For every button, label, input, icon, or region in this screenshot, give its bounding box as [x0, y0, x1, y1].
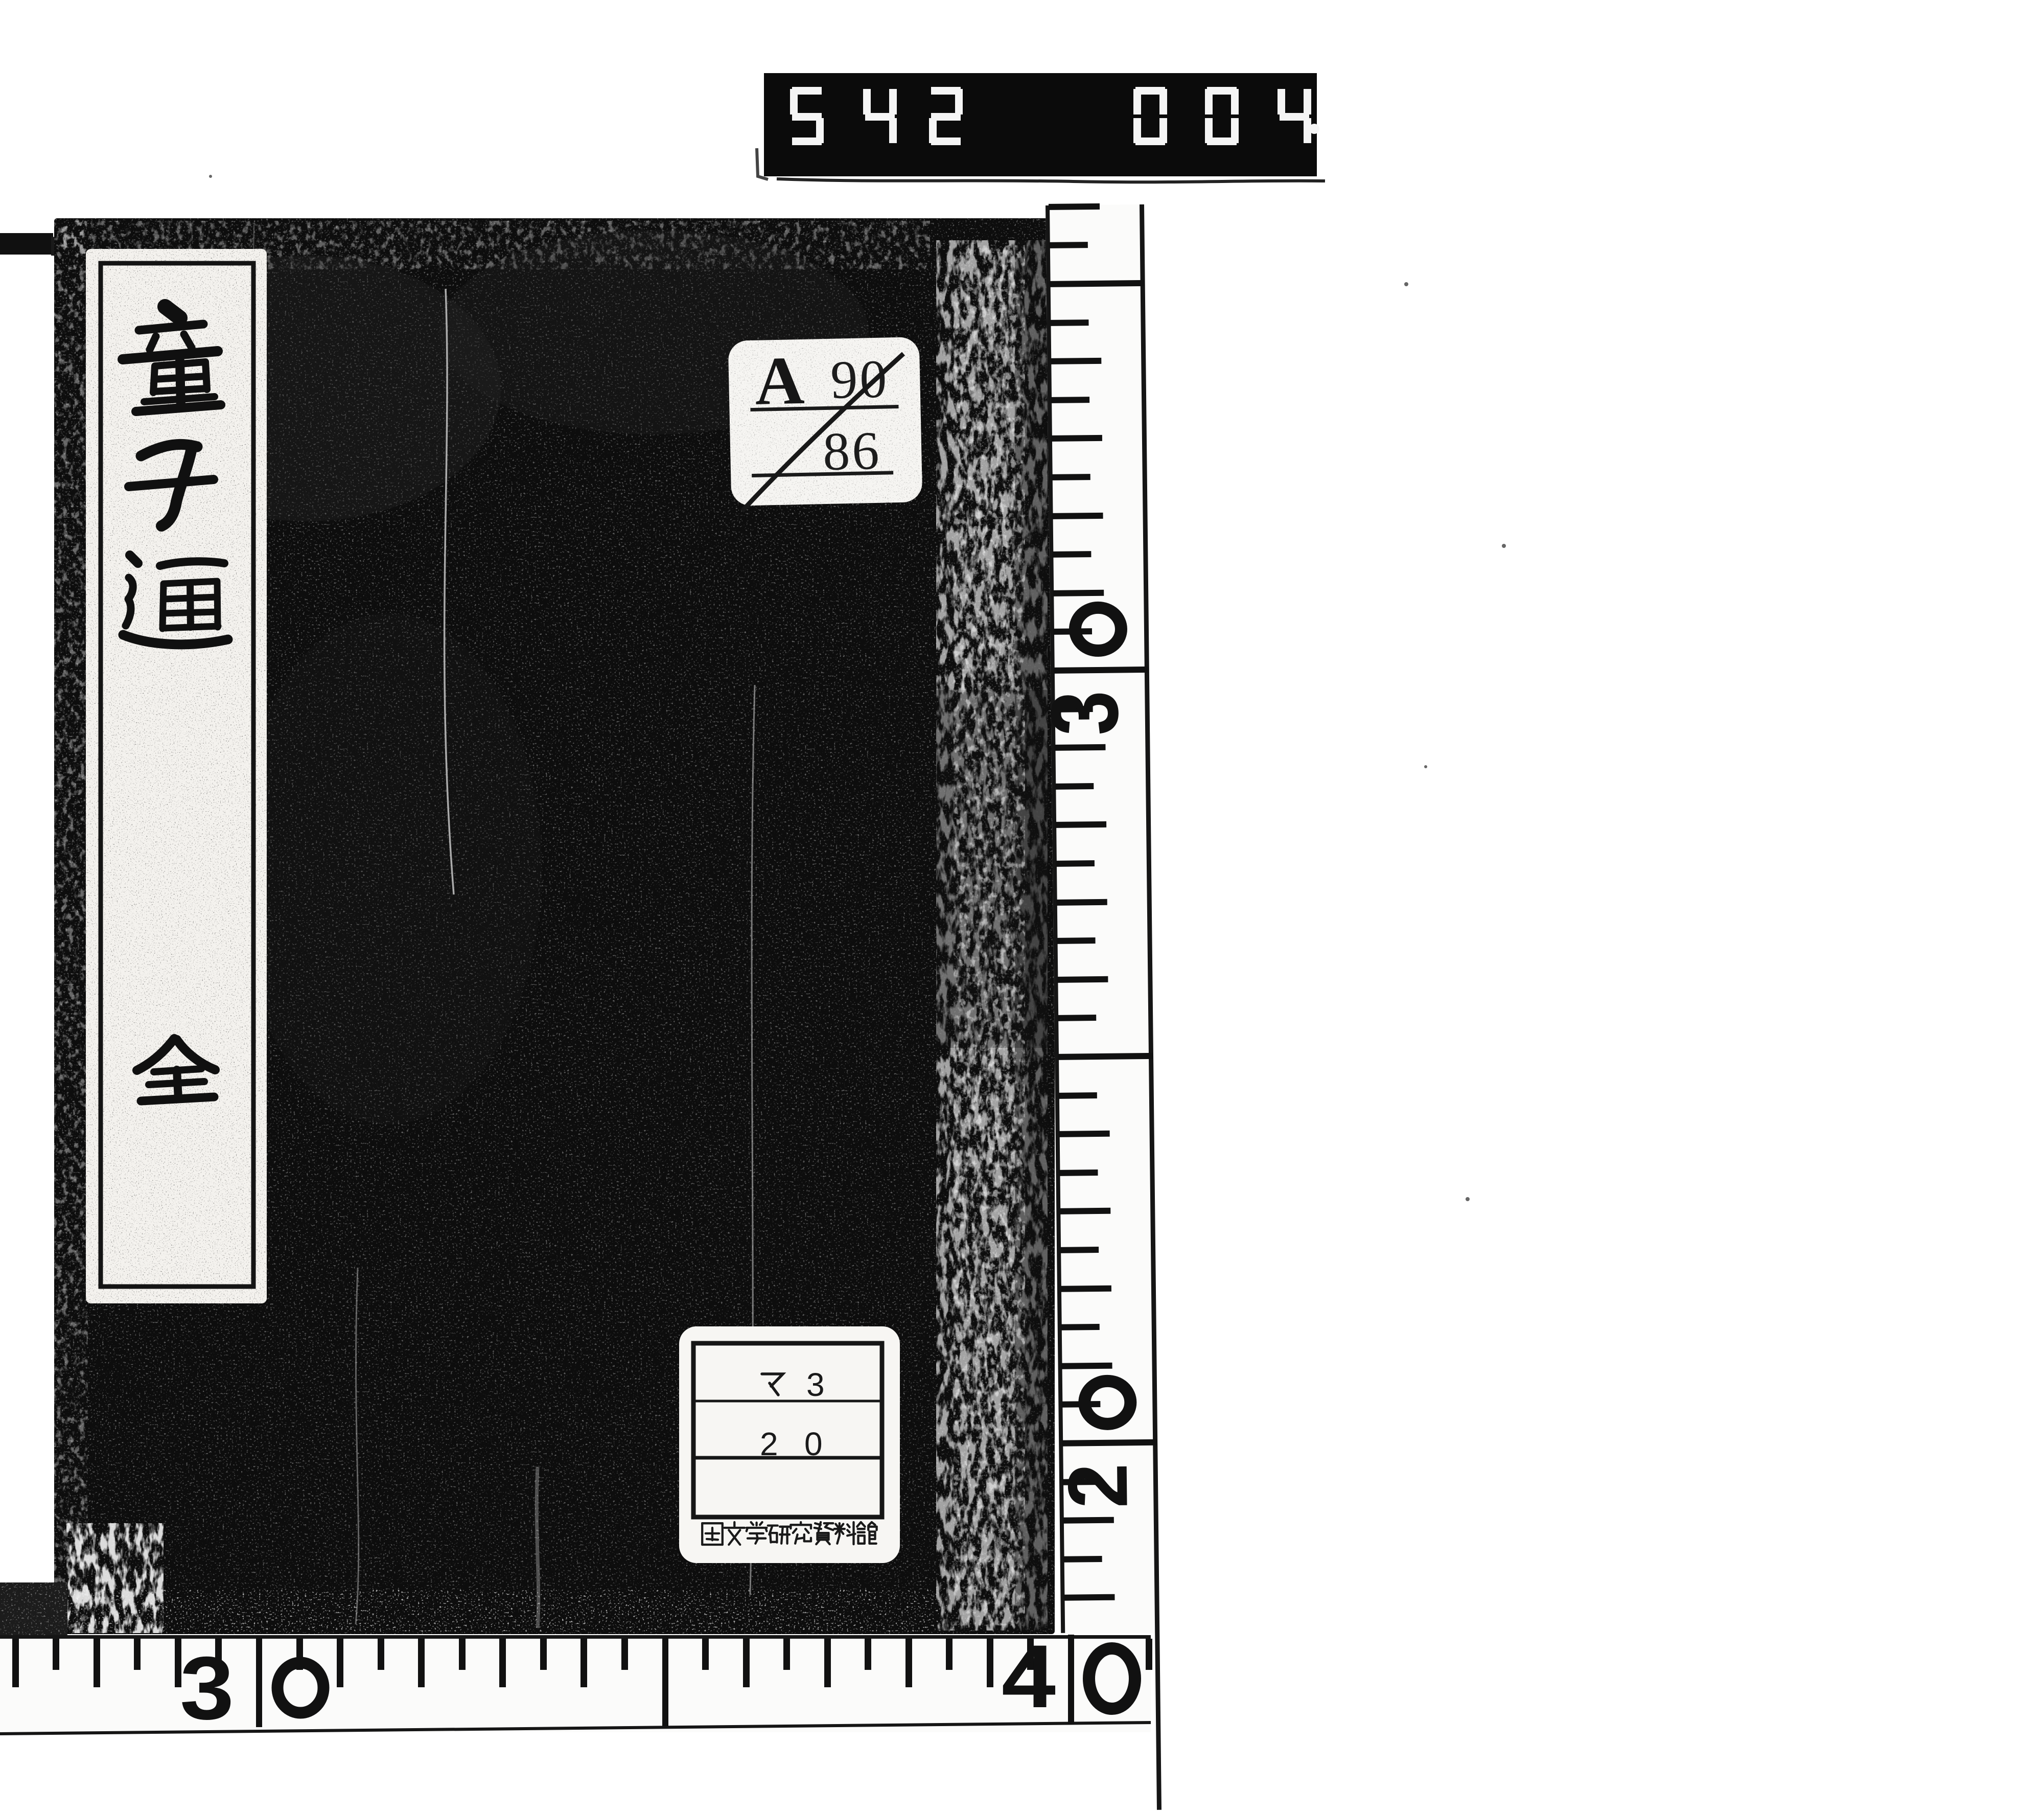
svg-text:3: 3: [1030, 690, 1138, 736]
svg-text:4: 4: [1002, 1626, 1056, 1726]
svg-text:90: 90: [830, 349, 889, 409]
svg-text:0: 0: [804, 1426, 823, 1462]
svg-text:2: 2: [1051, 1463, 1145, 1509]
svg-text:3: 3: [180, 1638, 234, 1738]
svg-text:2: 2: [760, 1426, 778, 1462]
svg-text:3: 3: [806, 1366, 825, 1403]
